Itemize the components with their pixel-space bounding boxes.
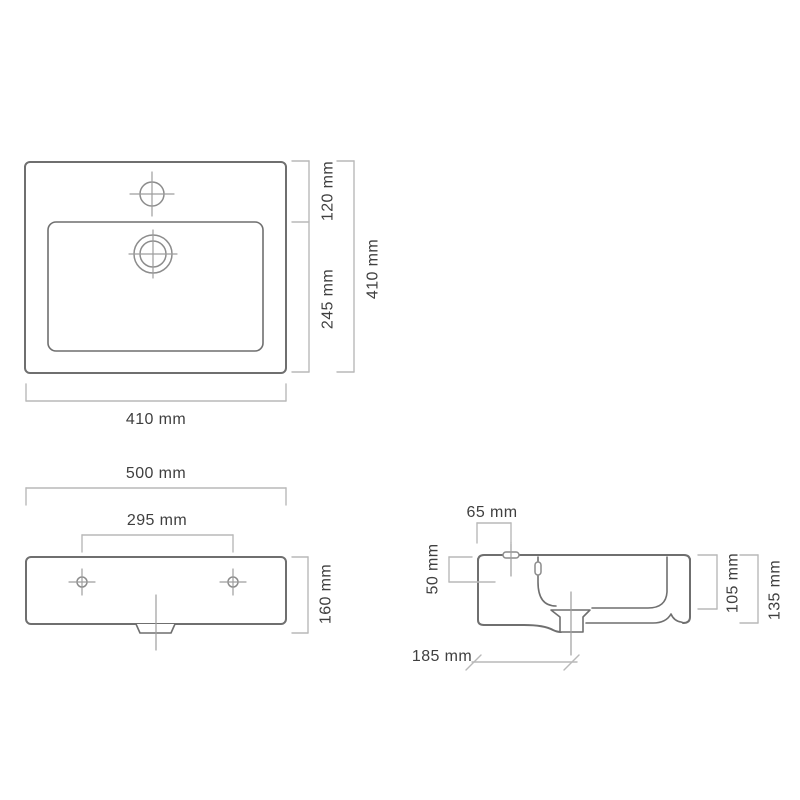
side-back-edge bbox=[478, 559, 484, 625]
dim-label-front-width: 500 mm bbox=[126, 465, 186, 482]
top-view: 120 mm 245 mm 410 mm 410 mm bbox=[25, 161, 382, 428]
dim-label-hole-spacing: 295 mm bbox=[127, 512, 187, 529]
dim-label-front-height: 160 mm bbox=[318, 564, 335, 624]
side-basin-front-wall bbox=[592, 557, 667, 608]
dim-label-total-depth: 410 mm bbox=[365, 239, 382, 299]
side-front-edge bbox=[683, 559, 690, 623]
dim-label-rim-depth: 120 mm bbox=[320, 161, 337, 221]
dim-label-side-height: 135 mm bbox=[767, 560, 784, 620]
drawing-canvas: 120 mm 245 mm 410 mm 410 mm 500 mm 295 m… bbox=[0, 0, 800, 800]
dim-label-faucet-offset: 65 mm bbox=[467, 504, 518, 521]
side-bottom-left-edge bbox=[484, 625, 561, 632]
front-view: 500 mm 295 mm 160 mm bbox=[26, 465, 335, 650]
dim-label-basin-depth: 105 mm bbox=[725, 553, 742, 613]
side-overflow-slot bbox=[535, 562, 541, 575]
dim-label-overflow-height: 50 mm bbox=[425, 544, 442, 595]
side-view: 65 mm 50 mm 105 mm 135 mm 185 mm bbox=[412, 504, 784, 670]
technical-drawing: 120 mm 245 mm 410 mm 410 mm 500 mm 295 m… bbox=[0, 0, 800, 800]
side-underside-edge bbox=[586, 614, 684, 623]
dim-label-basin-depth: 245 mm bbox=[320, 269, 337, 329]
dim-label-top-total-width: 410 mm bbox=[126, 411, 186, 428]
dim-label-drain-offset: 185 mm bbox=[412, 648, 472, 665]
